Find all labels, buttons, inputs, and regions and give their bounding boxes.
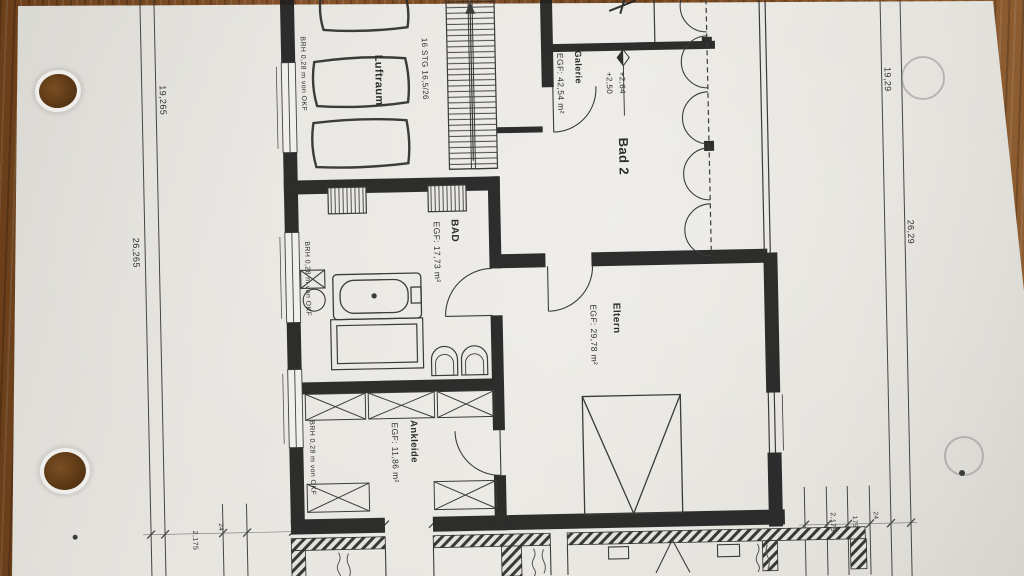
room-label-galerie: Galerie: [573, 50, 584, 84]
embossed-ring-top: [901, 56, 945, 100]
room-area-eltern: EGF: 29,78 m²: [588, 304, 599, 365]
ring-dot: [959, 470, 965, 476]
wall-galerie-divider: [540, 0, 554, 87]
wall-bottom-left: [291, 518, 385, 535]
room-label-ankleide: Ankleide: [408, 420, 420, 463]
door-ankleide: [455, 430, 501, 476]
wall-bottom-right: [433, 509, 785, 531]
tiny-illegible-text-marks: [337, 544, 769, 576]
room-area-ankleide: EGF: 11,86 m²: [390, 422, 401, 483]
room-label-eltern: Eltern: [610, 303, 622, 334]
bathtub: [333, 273, 422, 320]
wall-eltern-right-upper: [763, 252, 780, 392]
bed-sketch-3: [312, 118, 410, 168]
radiator-right: [428, 185, 467, 212]
dim-bottom-left-b: 24: [217, 523, 224, 531]
radiator-left: [328, 187, 367, 214]
sill-label-top: BRH 0,28 m von OKF: [299, 36, 308, 111]
ink-dot: [73, 535, 78, 540]
room-label-bad: BAD: [449, 219, 460, 242]
left-wall-windows: [276, 62, 303, 447]
wall-eltern-top-left: [491, 253, 545, 268]
dim-right-outer: 26,29: [906, 220, 917, 245]
embossed-ring-bottom: [944, 436, 984, 476]
level-upper-label: +2,64: [617, 72, 626, 95]
dim-bottom-right-c: 24: [872, 511, 879, 519]
dim-left-inner: 19,265: [158, 85, 169, 115]
wall-eltern-top-right: [591, 249, 767, 267]
door-eltern: [548, 265, 594, 311]
floor-plan-drawing: Luftraum BRH 0,28 m von OKF BRH 0,28 m v…: [0, 0, 1024, 576]
cut-off-room-label-stroke: [609, 0, 636, 14]
dimension-lines: [132, 0, 918, 576]
bed-sketch-2: [313, 57, 410, 108]
bed-sketch-1: [320, 0, 409, 32]
dimension-lines-bottom-left: [222, 504, 248, 576]
eltern-bed: [582, 394, 682, 514]
dim-right-inner: 19,29: [882, 67, 893, 92]
level-lower-label: +2,50: [604, 72, 613, 95]
lower-floor-drawing: [291, 527, 867, 576]
room-label-luftraum: Luftraum: [372, 55, 385, 106]
staircase: [446, 0, 498, 169]
vanity-cabinet: [331, 318, 424, 370]
room-area-galerie: EGF: 42,54 m²: [555, 53, 566, 114]
photo-scene: Luftraum BRH 0,28 m von OKF BRH 0,28 m v…: [0, 0, 1024, 576]
dim-bottom-right-b: 175: [851, 516, 858, 528]
wall-eltern-right-lower: [768, 452, 784, 526]
door-bad: [445, 268, 493, 316]
walls: [280, 0, 785, 537]
room-area-bad: EGF: 17,73 m²: [432, 221, 443, 282]
dim-bottom-right-a: 2,175: [829, 512, 836, 532]
dim-bottom-left-a: 2,175: [191, 531, 198, 551]
wall-bad-top: [284, 176, 500, 195]
sink-right: [461, 346, 488, 376]
room-label-bad2: Bad 2: [616, 137, 632, 175]
sink-left: [431, 346, 458, 376]
dimension-line-left-outer: [140, 0, 152, 576]
lower-bed-symbol: [655, 539, 690, 573]
dim-left-outer: 26,265: [131, 238, 142, 268]
stairs-label: 16 STG 16,5/26: [420, 38, 430, 100]
